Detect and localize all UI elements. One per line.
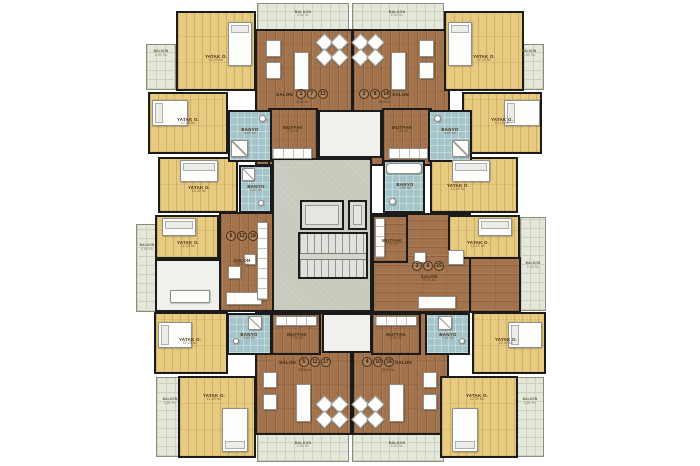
- bed-icon: [504, 100, 540, 126]
- kitchen-counter-icon: [257, 222, 268, 300]
- kitchen-counter-icon: [388, 148, 428, 159]
- sofa-icon: [170, 290, 210, 303]
- bed-icon: [180, 160, 218, 182]
- bed-icon: [162, 218, 196, 236]
- sink-icon: [258, 200, 264, 206]
- bed-icon: [452, 160, 490, 182]
- dining-table-icon: [318, 36, 346, 64]
- kitchen-counter-icon: [275, 316, 317, 326]
- kitchen-counter-icon: [375, 218, 385, 258]
- chair-icon: [330, 410, 348, 428]
- elevator-car-icon: [305, 205, 339, 225]
- kitchen-counter-icon: [375, 316, 417, 326]
- armchair-icon: [423, 372, 437, 388]
- sofa-icon: [418, 296, 456, 309]
- coffee-table-icon: [414, 252, 426, 263]
- balcony-top-left-corner: [146, 44, 176, 90]
- floor-plan: YATAK O.12.20 m² YATAK O.12.20 m² YATAK …: [0, 0, 700, 466]
- sofa-icon: [391, 52, 406, 90]
- bathtub-icon: [386, 163, 422, 174]
- bed-icon: [228, 22, 252, 66]
- sofa-icon: [294, 52, 309, 90]
- stair-landing: [300, 253, 366, 260]
- chair-icon: [366, 410, 384, 428]
- shower-icon: [438, 316, 452, 330]
- chair-icon: [366, 48, 384, 66]
- armchair-icon: [448, 250, 464, 265]
- sink-icon: [459, 338, 465, 344]
- bed-icon: [152, 100, 188, 126]
- armchair-icon: [263, 372, 277, 388]
- elevator-car-icon: [353, 205, 362, 225]
- sink-icon: [233, 338, 239, 344]
- balcony-bottom-right-corner: [516, 377, 544, 457]
- balcony-mid-right: [520, 217, 546, 311]
- armchair-icon: [419, 40, 434, 57]
- shower-icon: [242, 168, 255, 181]
- chair-icon: [330, 48, 348, 66]
- shower-icon: [248, 316, 262, 330]
- armchair-icon: [419, 62, 434, 79]
- staircase: [298, 232, 368, 279]
- entry-hall-bottom: [322, 313, 372, 353]
- bed-icon: [478, 218, 512, 236]
- dining-table-icon: [354, 36, 382, 64]
- sofa-icon: [389, 384, 404, 422]
- kitchen-counter-icon: [272, 148, 312, 159]
- balcony-bottom-2: [352, 434, 444, 462]
- coffee-table-icon: [244, 254, 256, 265]
- sink-icon: [389, 198, 396, 205]
- bed-icon: [452, 408, 478, 452]
- sink-icon: [434, 115, 441, 122]
- armchair-icon: [263, 394, 277, 410]
- sink-icon: [259, 115, 266, 122]
- bed-icon: [222, 408, 248, 452]
- armchair-icon: [228, 266, 241, 279]
- sofa-icon: [296, 384, 311, 422]
- armchair-icon: [423, 394, 437, 410]
- dining-table-icon: [354, 398, 382, 426]
- salon-unit-3-9-15-ext: [469, 257, 521, 313]
- bed-icon: [448, 22, 472, 66]
- bed-icon: [158, 322, 192, 348]
- shower-icon: [231, 140, 248, 157]
- balcony-top-1: [257, 3, 349, 31]
- armchair-icon: [266, 40, 281, 57]
- shower-icon: [452, 140, 469, 157]
- entry-hall-top: [318, 110, 382, 158]
- balcony-top-2: [352, 3, 444, 31]
- elevator-2: [348, 200, 367, 230]
- sitting-nook-unit-6-12-18: [155, 259, 221, 312]
- balcony-bottom-1: [257, 434, 349, 462]
- bed-icon: [508, 322, 542, 348]
- dining-table-icon: [318, 398, 346, 426]
- armchair-icon: [266, 62, 281, 79]
- elevator-1: [300, 200, 344, 230]
